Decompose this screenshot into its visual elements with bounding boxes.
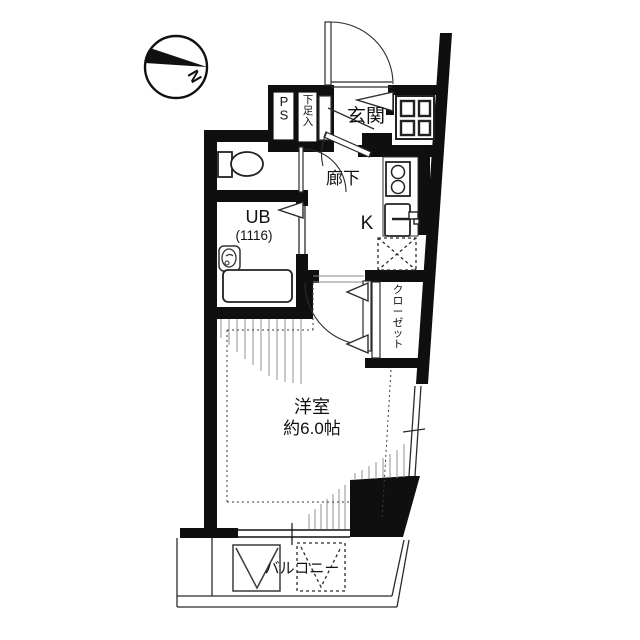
western-room-label: 洋室 (294, 397, 330, 417)
meter-box (396, 96, 434, 139)
washbasin-icon (219, 246, 240, 271)
meter-box-pane (419, 101, 430, 116)
bathtub-icon (223, 270, 292, 302)
floor-plan: N (0, 0, 640, 640)
wall-room-corner (300, 283, 313, 319)
floor-plan-canvas: N (0, 0, 640, 640)
wall-toilet-ub-divider (215, 190, 307, 202)
closet-door-track (372, 282, 380, 358)
wall-ub-bottom (204, 307, 310, 319)
toilet-door-leaf (299, 147, 303, 192)
meter-box-pane (401, 101, 414, 116)
unit-bath-label: UB (245, 207, 270, 227)
wall-top-right (388, 85, 443, 95)
kitchen-label: K (361, 213, 374, 234)
western-room-size-label: 約6.0帖 (283, 419, 341, 438)
entrance-label: 玄関 (347, 105, 385, 127)
pipe-space-label: PS (280, 94, 289, 123)
wall-kitchen-top-a (362, 133, 392, 145)
toilet-icon (218, 152, 263, 177)
meter-box-pane (401, 121, 414, 135)
wall-closet-top (365, 270, 427, 282)
meter-box-pane (419, 121, 430, 135)
shoe-cabinet-label: 下足入 (303, 94, 314, 128)
hallway-label: 廊下 (326, 169, 360, 188)
north-arrow: N (145, 36, 207, 98)
unit-bath-size-label: (1116) (235, 228, 272, 243)
closet-label: クローゼット (393, 284, 404, 351)
balcony-label: バルコニー (265, 560, 340, 577)
stove-icon (386, 162, 410, 196)
entrance-door-leaf (325, 22, 331, 85)
wall-bottom-left-stub (180, 528, 238, 538)
